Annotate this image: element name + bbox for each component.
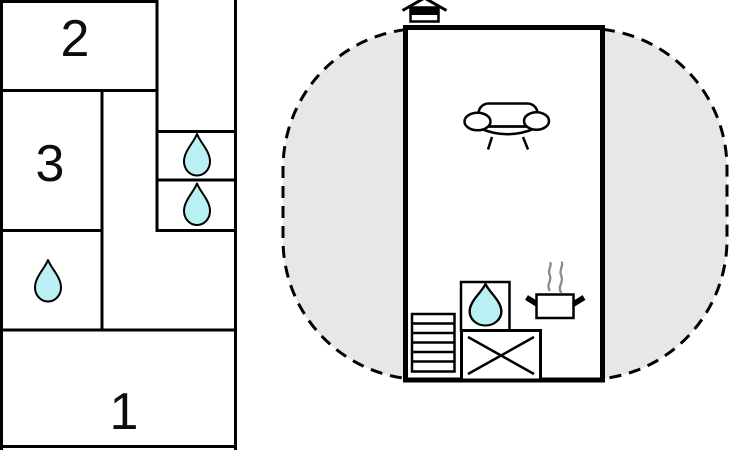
chimney-icon	[403, 0, 447, 22]
room-1-label: 1	[110, 386, 139, 438]
crossed-box-icon	[462, 331, 541, 381]
main-unit-plan	[283, 0, 727, 380]
water-drop-icon	[184, 134, 210, 176]
water-drop-icon	[184, 184, 210, 226]
shelf-icon	[412, 314, 455, 372]
room-2-label: 2	[61, 13, 90, 65]
water-drop-icon	[35, 260, 61, 302]
sink-unit-icon	[461, 282, 510, 331]
floor-plan: 2 3 1	[0, 0, 730, 450]
room-3-label: 3	[36, 138, 65, 190]
